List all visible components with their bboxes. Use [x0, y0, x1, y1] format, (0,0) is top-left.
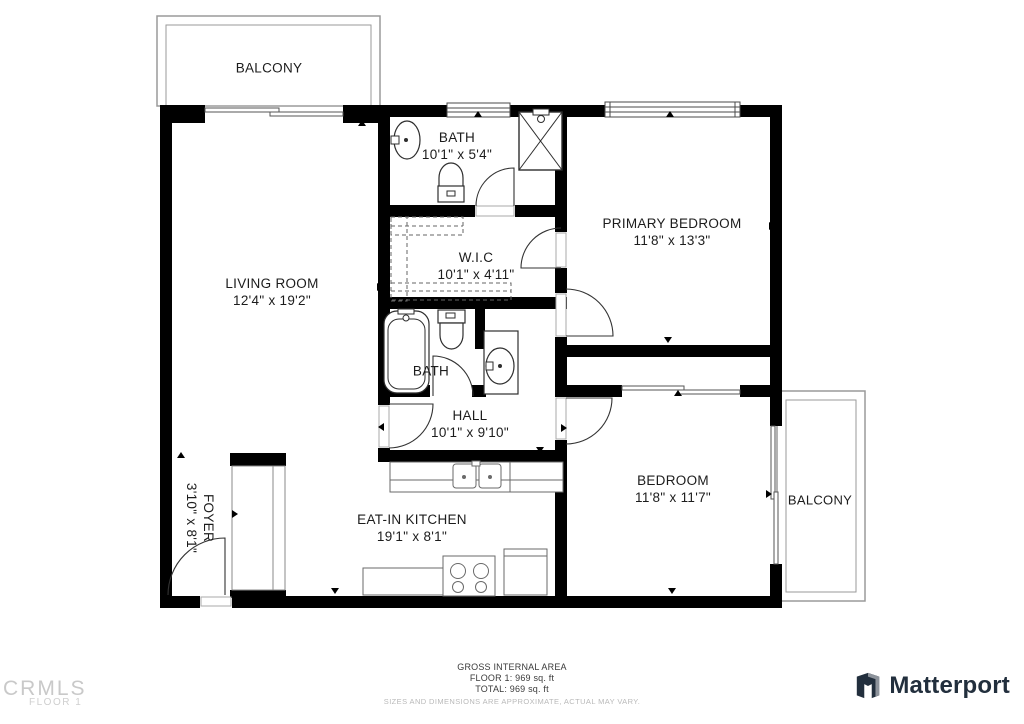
floor-area-line: FLOOR 1: 969 sq. ft: [312, 673, 712, 684]
disclaimer-text: SIZES AND DIMENSIONS ARE APPROXIMATE, AC…: [312, 696, 712, 707]
mls-logo-text: CRMLS: [3, 678, 87, 699]
mls-floor-label: FLOOR 1: [29, 698, 87, 708]
room-label-kitchen: EAT-IN KITCHEN 19'1" x 8'1": [357, 511, 467, 545]
counter-icon: [363, 568, 443, 595]
room-label-living-room: LIVING ROOM 12'4" x 19'2": [225, 275, 318, 309]
total-area-line: TOTAL: 969 sq. ft: [312, 684, 712, 695]
room-label-bath-hall: BATH: [413, 363, 449, 380]
gross-area-title: GROSS INTERNAL AREA: [312, 662, 712, 673]
room-label-bedroom: BEDROOM 11'8" x 11'7": [635, 472, 711, 506]
floorplan-page: BALCONY LIVING ROOM 12'4" x 19'2" BATH 1…: [0, 0, 1024, 724]
room-label-bath-top: BATH 10'1" x 5'4": [422, 129, 492, 163]
room-label-balcony-top: BALCONY: [236, 60, 303, 77]
bath-hall-fixtures: [384, 309, 518, 394]
shower-icon: [519, 109, 562, 170]
stove-icon: [443, 556, 495, 596]
room-label-balcony-right: BALCONY: [788, 492, 852, 509]
room-label-foyer: FOYER 3'10" x 8'1": [183, 483, 217, 553]
mls-logo: CRMLS FLOOR 1: [3, 678, 87, 708]
room-label-hall: HALL 10'1" x 9'10": [431, 407, 509, 441]
foyer-closet: [232, 466, 285, 590]
room-label-primary-bedroom: PRIMARY BEDROOM 11'8" x 13'3": [602, 215, 741, 249]
refrigerator-icon: [504, 549, 547, 595]
matterport-logo-icon: [854, 672, 882, 700]
matterport-logo: Matterport: [854, 672, 1010, 700]
matterport-logo-text: Matterport: [889, 672, 1010, 700]
area-summary: GROSS INTERNAL AREA FLOOR 1: 969 sq. ft …: [312, 662, 712, 707]
floorplan-drawing: [0, 0, 1024, 724]
toilet-icon: [439, 163, 463, 188]
room-label-wic: W.I.C 10'1" x 4'11": [438, 249, 515, 283]
